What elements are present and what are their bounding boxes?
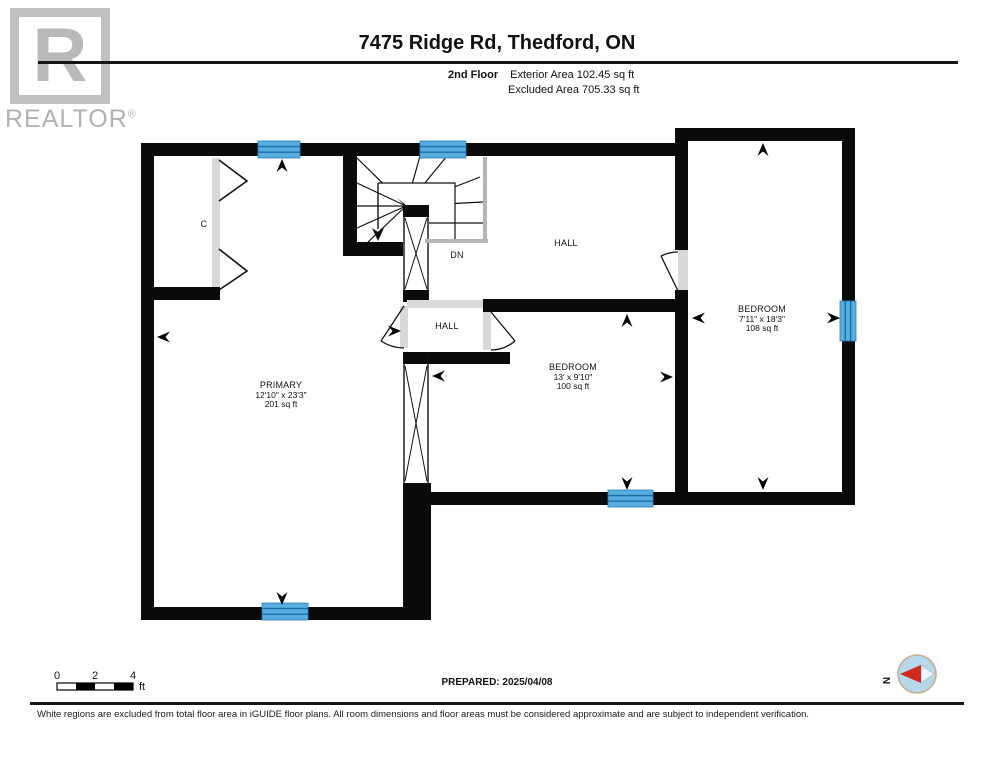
dimension-arrows <box>157 143 840 605</box>
walls <box>141 128 855 620</box>
mid-bedroom-label: BEDROOM 13' x 9'10" 100 sq ft <box>549 363 597 391</box>
right-bedroom-label: BEDROOM 7'11" x 18'3" 108 sq ft <box>738 305 786 333</box>
primary-room-label: PRIMARY 12'10" x 23'3" 201 sq ft <box>255 381 306 409</box>
window-right-bedroom <box>840 301 856 341</box>
right-bedroom-area: 108 sq ft <box>738 324 786 333</box>
wall-void-cap-2b <box>403 483 429 495</box>
window-primary-bottom <box>262 603 308 620</box>
wall-left-outer <box>141 143 154 620</box>
wall-bedroom-left-upper <box>675 141 688 250</box>
right-bedroom-door <box>661 252 678 291</box>
compass-north-label: N <box>882 677 893 684</box>
stairs-down-arrow <box>372 183 384 241</box>
arrow-midbed-up <box>622 314 633 327</box>
floorplan-drawing <box>0 0 994 768</box>
wall-stair-left <box>343 156 357 243</box>
wall-bedroom-left-lower <box>675 290 688 505</box>
bedroom-door-opening <box>678 250 688 290</box>
arrow-rightbed-right <box>827 313 840 324</box>
arrow-midbed-down <box>622 477 633 490</box>
wall-top-right-bedroom <box>675 128 855 141</box>
wall-hall-bottom <box>403 352 510 364</box>
wall-closet-bottom <box>141 287 220 300</box>
hall-right-door-opening <box>483 312 491 350</box>
wall-top-main <box>141 143 675 156</box>
arrow-primary-up <box>277 159 288 172</box>
closet-bifold-door-1 <box>219 160 247 201</box>
stairs-dn-label: DN <box>450 251 464 261</box>
wall-mid-bedroom-top <box>483 299 675 312</box>
wall-void-cap-1a <box>403 205 429 217</box>
closet-label: C <box>201 220 208 230</box>
arrow-rightbed-down <box>758 477 769 490</box>
floorplan-page: R REALTOR® 7475 Ridge Rd, Thedford, ON 2… <box>0 0 994 768</box>
wall-stair-bottom <box>343 242 403 256</box>
hall-right-door <box>491 312 515 350</box>
arrow-midbed-right <box>660 372 673 383</box>
arrow-primary-right <box>388 326 401 337</box>
footer-divider-line <box>30 702 964 705</box>
hall-left-door-opening <box>400 306 408 348</box>
window-mid-bedroom-bottom <box>608 490 653 507</box>
closet-bifold-door-2 <box>219 249 247 290</box>
closet-door-track <box>212 158 220 287</box>
primary-room-area: 201 sq ft <box>255 400 306 409</box>
prepared-date: PREPARED: 2025/04/08 <box>0 677 994 688</box>
window-primary-top <box>258 141 300 158</box>
arrow-rightbed-left <box>692 313 705 324</box>
arrow-rightbed-up <box>758 143 769 156</box>
window-stairs-top <box>420 141 466 158</box>
arrow-midbed-left <box>432 371 445 382</box>
mid-bedroom-area: 100 sq ft <box>549 382 597 391</box>
hall-upper-label: HALL <box>554 239 578 249</box>
footer-disclaimer: White regions are excluded from total fl… <box>37 709 809 720</box>
hall-lower-label: HALL <box>435 322 459 332</box>
hall-top-opening <box>407 300 483 308</box>
arrow-primary-left <box>157 332 170 343</box>
